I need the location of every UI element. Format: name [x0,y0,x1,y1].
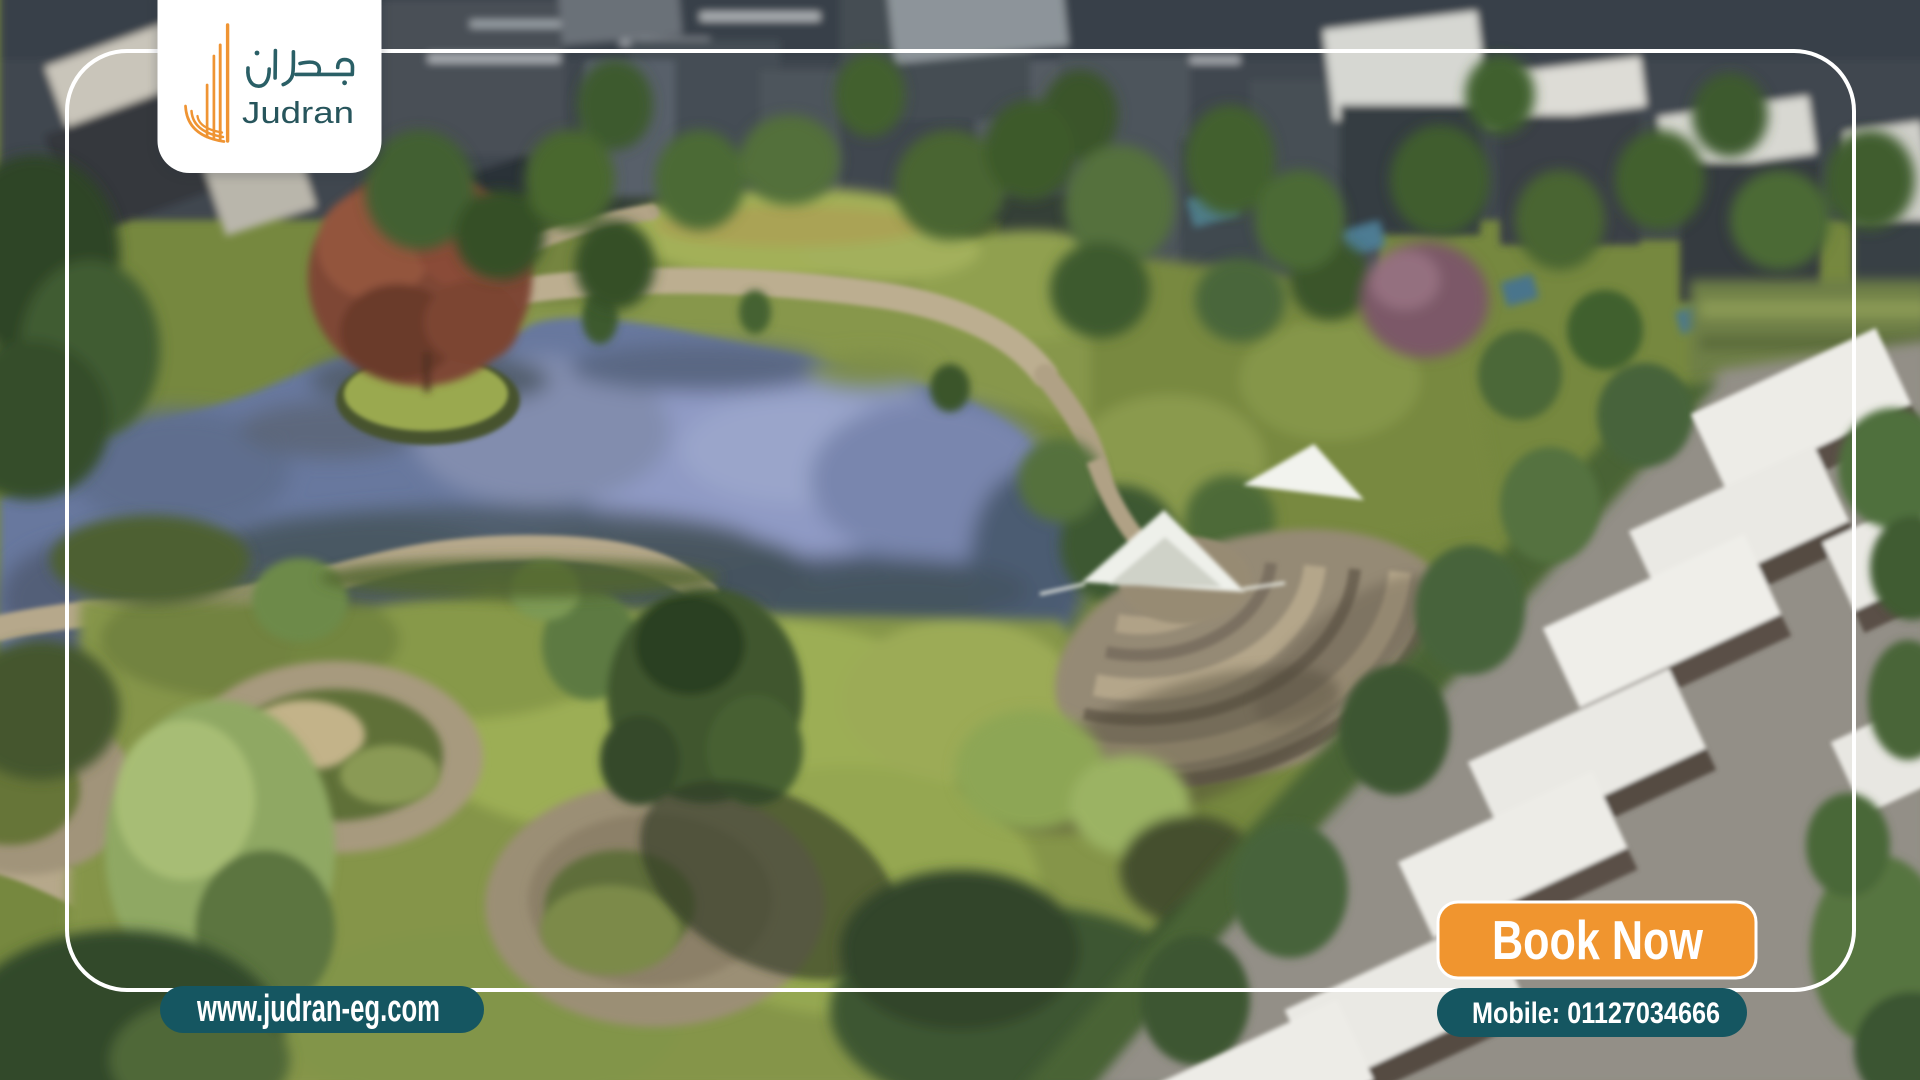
svg-text:Mobile: 01127034666: Mobile: 01127034666 [1472,997,1720,1030]
svg-text:Book Now: Book Now [1492,909,1703,971]
svg-text:www.judran-eg.com: www.judran-eg.com [196,988,440,1030]
svg-text:Judran: Judran [242,95,354,130]
